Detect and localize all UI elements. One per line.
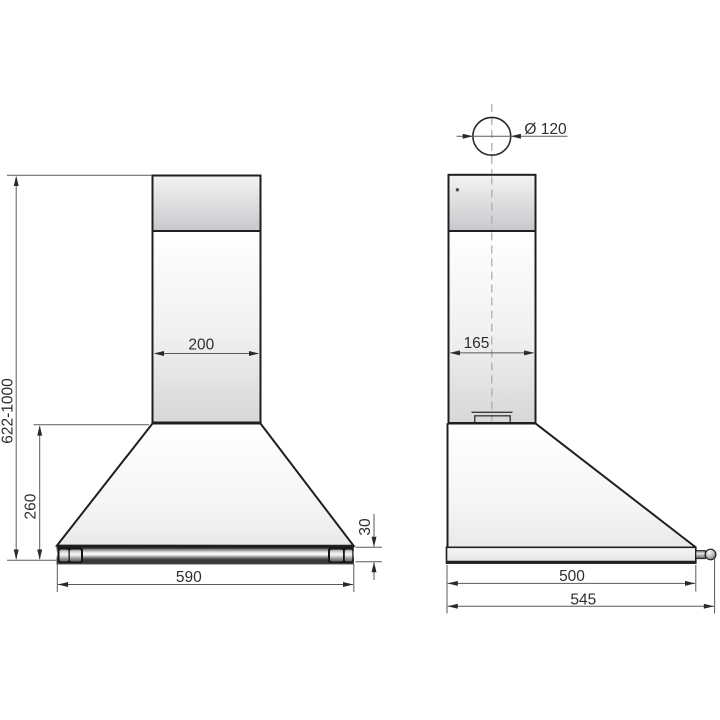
svg-text:590: 590 (176, 569, 202, 586)
svg-text:260: 260 (22, 493, 39, 519)
svg-text:30: 30 (357, 518, 374, 536)
svg-text:500: 500 (559, 568, 585, 585)
svg-text:545: 545 (570, 591, 596, 608)
svg-text:165: 165 (464, 335, 490, 352)
svg-text:200: 200 (188, 337, 214, 354)
svg-text:Ø 120: Ø 120 (524, 121, 567, 138)
svg-text:622-1000: 622-1000 (0, 378, 16, 444)
